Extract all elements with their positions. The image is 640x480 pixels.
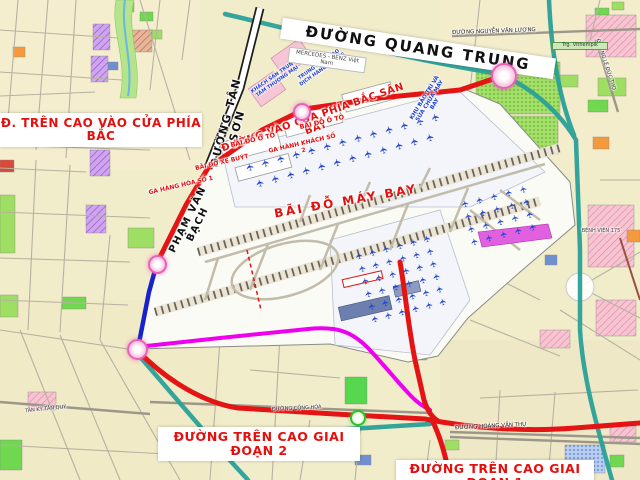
base-map bbox=[0, 0, 640, 480]
map-canvas[interactable]: ✈✈✈✈✈✈✈✈✈✈✈✈✈✈✈✈✈✈✈✈✈✈✈✈✈✈✈✈✈✈✈✈✈✈✈✈✈✈✈✈… bbox=[0, 0, 640, 480]
interchange-node-quang-trung bbox=[491, 63, 517, 89]
interchange-node-pham-van-bach bbox=[148, 255, 167, 274]
interchange-node-phase-boundary bbox=[350, 410, 366, 426]
interchange-node-southwest bbox=[127, 339, 148, 360]
interchange-node-north-gate bbox=[293, 103, 311, 121]
